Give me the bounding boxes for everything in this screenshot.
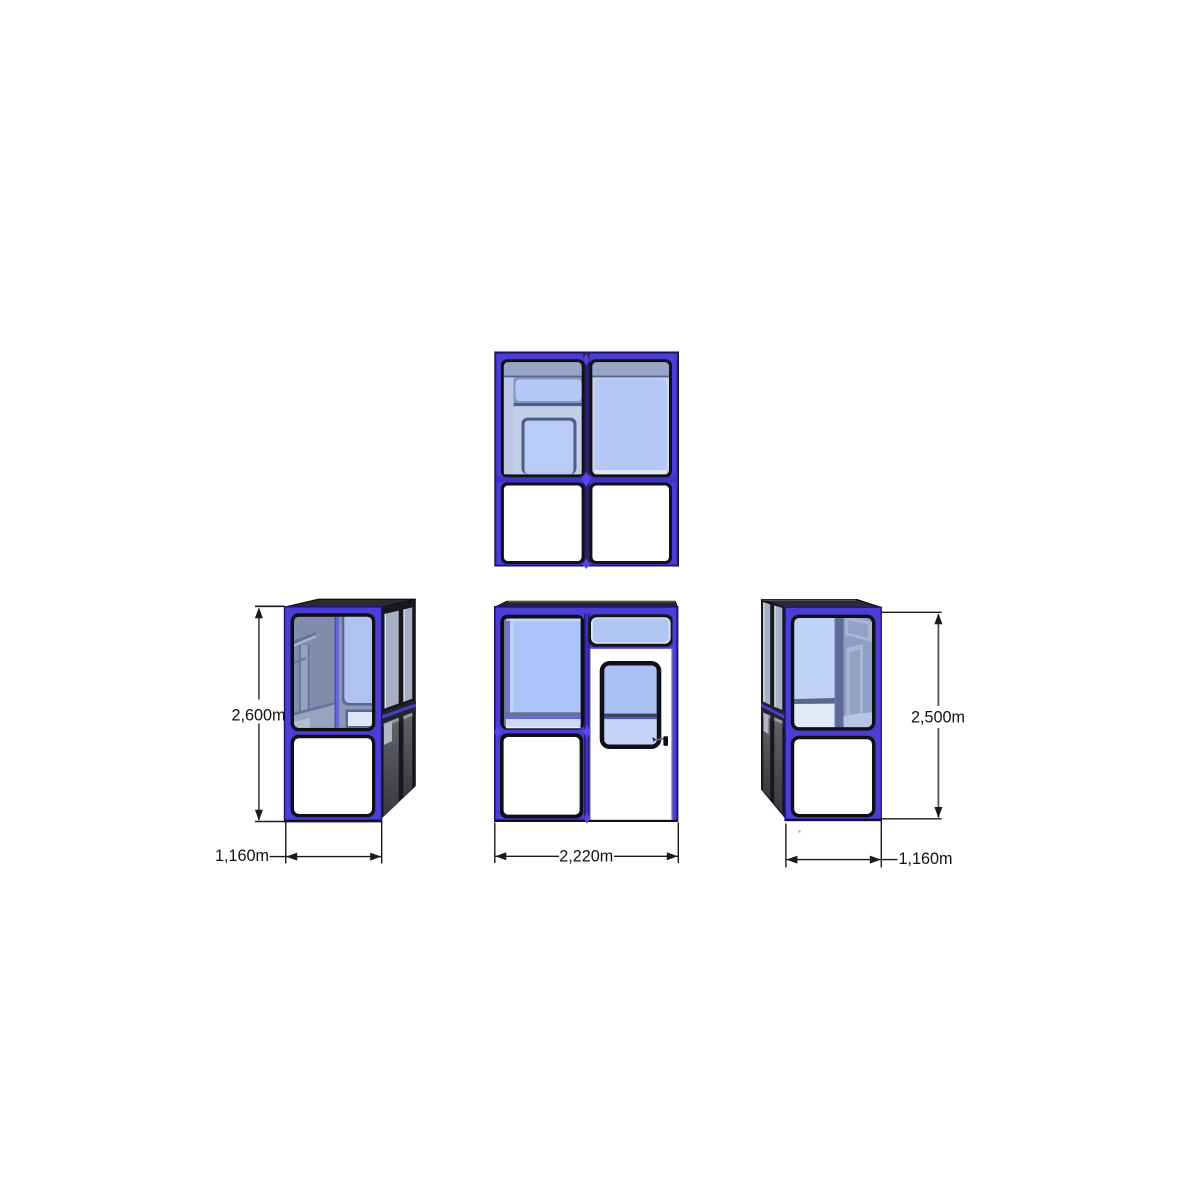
svg-text:1,160m: 1,160m [899, 850, 953, 868]
svg-text:2,500m: 2,500m [911, 708, 965, 726]
svg-text:2,220m: 2,220m [559, 847, 613, 865]
svg-text:1,160m: 1,160m [215, 847, 269, 865]
svg-text:2,600m: 2,600m [232, 706, 286, 724]
